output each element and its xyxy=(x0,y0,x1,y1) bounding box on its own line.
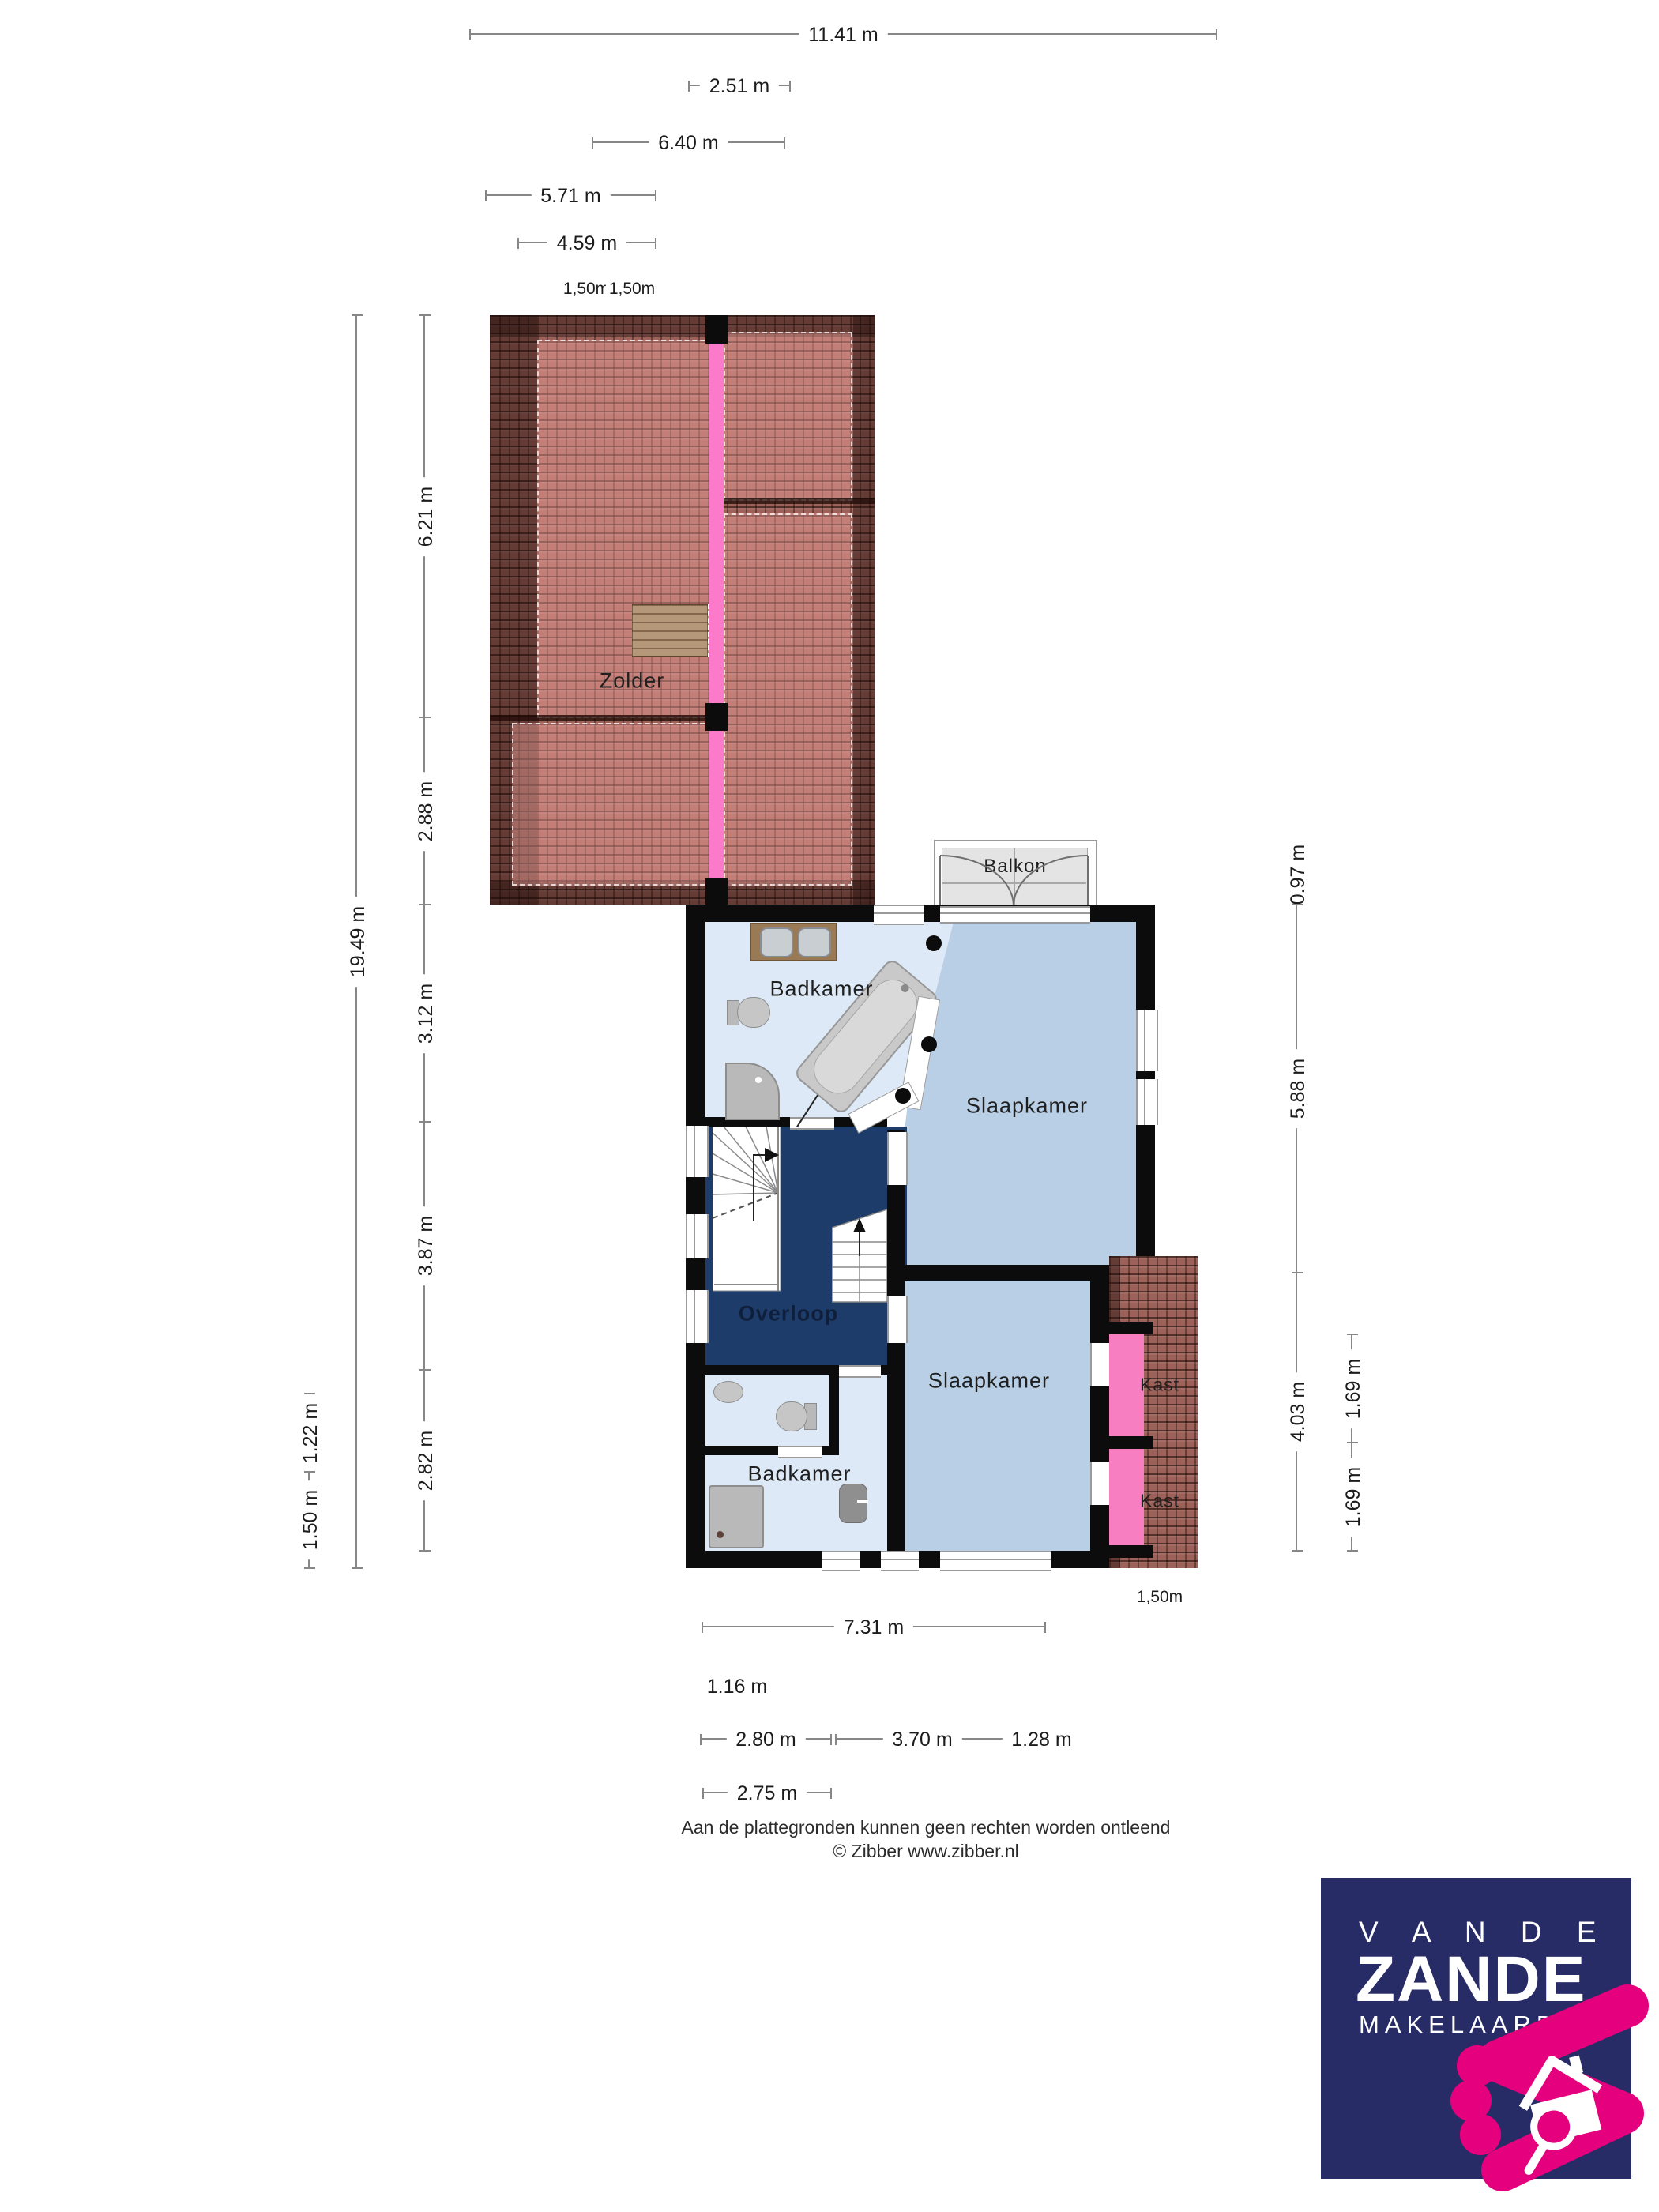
post-dot-2 xyxy=(921,1036,937,1052)
post-dot-3 xyxy=(895,1088,911,1104)
dim-169-top: 1.69 m xyxy=(1351,1334,1352,1443)
dim-balcony-depth: 0.97 m xyxy=(1296,844,1297,905)
dim-116: 1.16 m xyxy=(705,1685,769,1687)
dim-731: 7.31 m xyxy=(702,1626,1045,1627)
sink-right-icon xyxy=(798,927,831,957)
balkon-door-arcs xyxy=(934,840,1094,912)
wall-kast1-top xyxy=(1109,1322,1153,1334)
window-bottom-2 xyxy=(881,1551,919,1571)
wall-slaapkamer2-right xyxy=(1090,1281,1109,1551)
wall-wc-right xyxy=(829,1375,839,1455)
door-wc xyxy=(778,1446,822,1458)
floor-slaapkamer2 xyxy=(905,1281,1090,1551)
dormer-height-label: 1,50m xyxy=(1134,1588,1186,1607)
dim-122: 1.22 m xyxy=(308,1394,310,1472)
room-label-badkamer2: Badkamer xyxy=(747,1462,851,1487)
dim-387: 3.87 m xyxy=(423,1122,425,1370)
window-left-1 xyxy=(686,1126,709,1177)
dim-621: 6.21 m xyxy=(423,315,425,717)
dim-169-bottom: 1.69 m xyxy=(1351,1443,1352,1551)
room-label-zolder: Zolder xyxy=(600,669,665,694)
toilet1-bowl xyxy=(737,997,770,1028)
window-bottom-1 xyxy=(822,1551,860,1571)
kast1-floor xyxy=(1109,1334,1144,1436)
winder-staircase xyxy=(713,1127,782,1293)
wc-toilet-bowl xyxy=(776,1401,807,1431)
dim-150: 1.50 m xyxy=(308,1472,310,1568)
door-slaapkamer1 xyxy=(887,1132,908,1185)
shower2 xyxy=(709,1485,764,1548)
footer-line2: © Zibber www.zibber.nl xyxy=(570,1839,1281,1863)
roof-seam-left xyxy=(490,715,709,721)
roof-ridge-line xyxy=(709,315,724,905)
roof-shade-right xyxy=(853,315,875,905)
door-badkamer1 xyxy=(790,1117,834,1130)
post-dot-1 xyxy=(926,935,942,951)
room-label-overloop: Overloop xyxy=(739,1302,839,1326)
wall-kast-divider xyxy=(1109,1436,1153,1449)
dim-288: 2.88 m xyxy=(423,717,425,905)
kast2-floor xyxy=(1109,1449,1144,1545)
window-right-1 xyxy=(1136,1010,1158,1071)
dim-275: 2.75 m xyxy=(703,1792,831,1793)
wc-sink xyxy=(713,1381,743,1403)
room-label-badkamer1: Badkamer xyxy=(769,977,873,1002)
dim-640: 6.40 m xyxy=(592,141,784,143)
shower2-drain xyxy=(717,1531,724,1538)
dim-571: 5.71 m xyxy=(486,194,656,196)
ridge-height-label-right: 1,50m xyxy=(606,280,658,299)
wall-kast2-bottom xyxy=(1109,1545,1153,1558)
balkon-door-opening xyxy=(940,906,1090,924)
dim-total-width: 11.41 m xyxy=(470,33,1217,35)
roof-lightzone-left-upper xyxy=(537,340,713,718)
dim-total-height: 19.49 m xyxy=(355,315,357,1568)
roof-zolder: Zolder xyxy=(490,315,875,905)
ridge-wall-stub-bottom xyxy=(705,878,728,905)
door-badkamer2 xyxy=(839,1365,881,1378)
window-left-3 xyxy=(686,1290,709,1343)
dim-128: 1.28 m xyxy=(1013,1738,1070,1740)
dim-280: 2.80 m xyxy=(701,1738,831,1740)
dim-312: 3.12 m xyxy=(423,905,425,1122)
ridge-wall-stub-middle xyxy=(705,703,728,731)
dim-588: 5.88 m xyxy=(1296,905,1297,1273)
window-bottom-3 xyxy=(940,1551,1051,1571)
shower1-drain xyxy=(755,1077,762,1083)
ridge-height-label-left: 1,50m xyxy=(560,280,612,299)
roof-lightzone-right-upper xyxy=(724,332,852,501)
dim-370: 3.70 m xyxy=(836,1738,1009,1740)
footer-disclaimer: Aan de plattegronden kunnen geen rechten… xyxy=(570,1815,1281,1863)
dim-459: 4.59 m xyxy=(518,242,656,243)
ridge-wall-stub-top xyxy=(705,315,728,344)
roof-skylight xyxy=(632,604,710,657)
dim-403: 4.03 m xyxy=(1296,1273,1297,1551)
room-label-kast2: Kast xyxy=(1140,1491,1179,1512)
door-slaapkamer2 xyxy=(887,1296,908,1343)
sink-left-icon xyxy=(760,927,793,957)
roof-lightzone-left-lower xyxy=(512,723,713,886)
brand-logo: V A N D E ZANDE MAKELAARDIJ xyxy=(1321,1878,1631,2179)
window-right-2 xyxy=(1136,1079,1158,1125)
floorplan-page: 11.41 m 2.51 m 6.40 m 5.71 m 4.59 m 1,50… xyxy=(0,0,1659,2212)
roof-shade-bottom xyxy=(490,882,875,905)
window-top xyxy=(874,905,924,925)
dim-282: 2.82 m xyxy=(423,1370,425,1551)
roof-lightzone-right-lower xyxy=(724,513,852,886)
room-label-kast1: Kast xyxy=(1140,1375,1179,1396)
room-label-slaapkamer2: Slaapkamer xyxy=(928,1369,1050,1394)
dim-251: 2.51 m xyxy=(689,85,790,86)
badkamer2-sink xyxy=(839,1484,867,1523)
roof-seam-right xyxy=(724,498,875,504)
window-left-2 xyxy=(686,1214,709,1258)
straight-staircase xyxy=(832,1207,887,1303)
room-label-slaapkamer1: Slaapkamer xyxy=(966,1094,1088,1119)
wall-slaapkamer-divider xyxy=(905,1265,1136,1281)
logo-house-icon xyxy=(1424,1973,1659,2202)
badkamer2-sink-tap xyxy=(857,1500,868,1503)
footer-line1: Aan de plattegronden kunnen geen rechten… xyxy=(570,1815,1281,1839)
